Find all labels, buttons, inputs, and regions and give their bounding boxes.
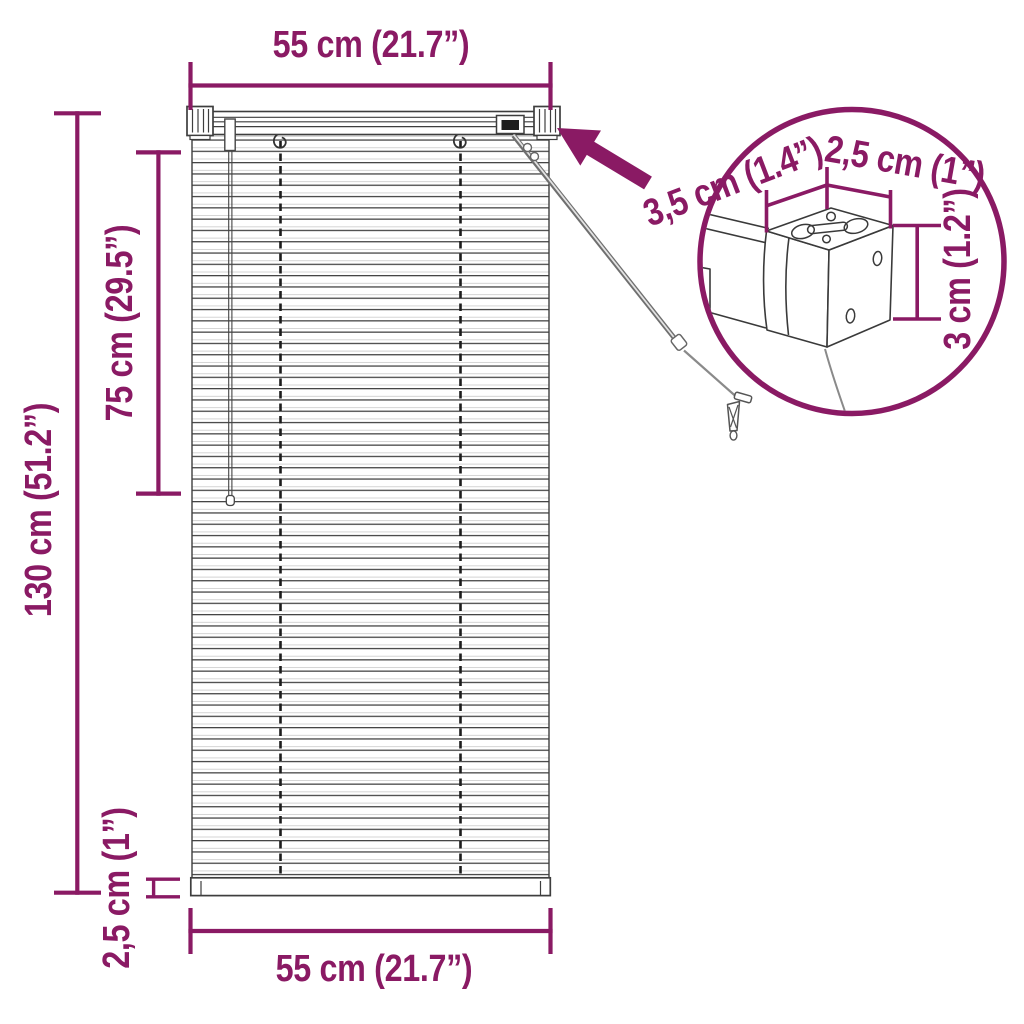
bottom-width-label: 55 cm (21.7”): [276, 950, 473, 988]
product-dimension-diagram: 55 cm (21.7”) 55 cm (21.7”) 130 cm (51.2…: [0, 0, 1024, 1024]
detail-bracket-front-face: [764, 231, 829, 347]
dim-upper-section-height: [136, 150, 181, 495]
dim-bracket-height: [893, 226, 941, 320]
bracket-height-label: 3 cm (1.2”): [939, 188, 977, 349]
callout-arrow-icon: [557, 128, 652, 189]
dim-top-width: [188, 62, 552, 110]
dim-total-height: [54, 111, 101, 895]
top-width-label: 55 cm (21.7”): [273, 26, 470, 64]
total-height-label: 130 cm (51.2”): [20, 403, 58, 617]
mounting-bracket-left: [187, 107, 213, 140]
cord-lock: [225, 119, 235, 151]
bottom-rail: [191, 878, 551, 896]
mounting-bracket-right: [534, 107, 560, 140]
slats: [192, 135, 549, 879]
wand-handle: [728, 392, 753, 440]
lift-cord-tip: [226, 496, 234, 506]
dim-bottom-rail-height: [146, 879, 180, 897]
upper-section-height-label: 75 cm (29.5”): [101, 225, 139, 422]
bottom-rail-height-label: 2,5 cm (1”): [98, 807, 136, 968]
